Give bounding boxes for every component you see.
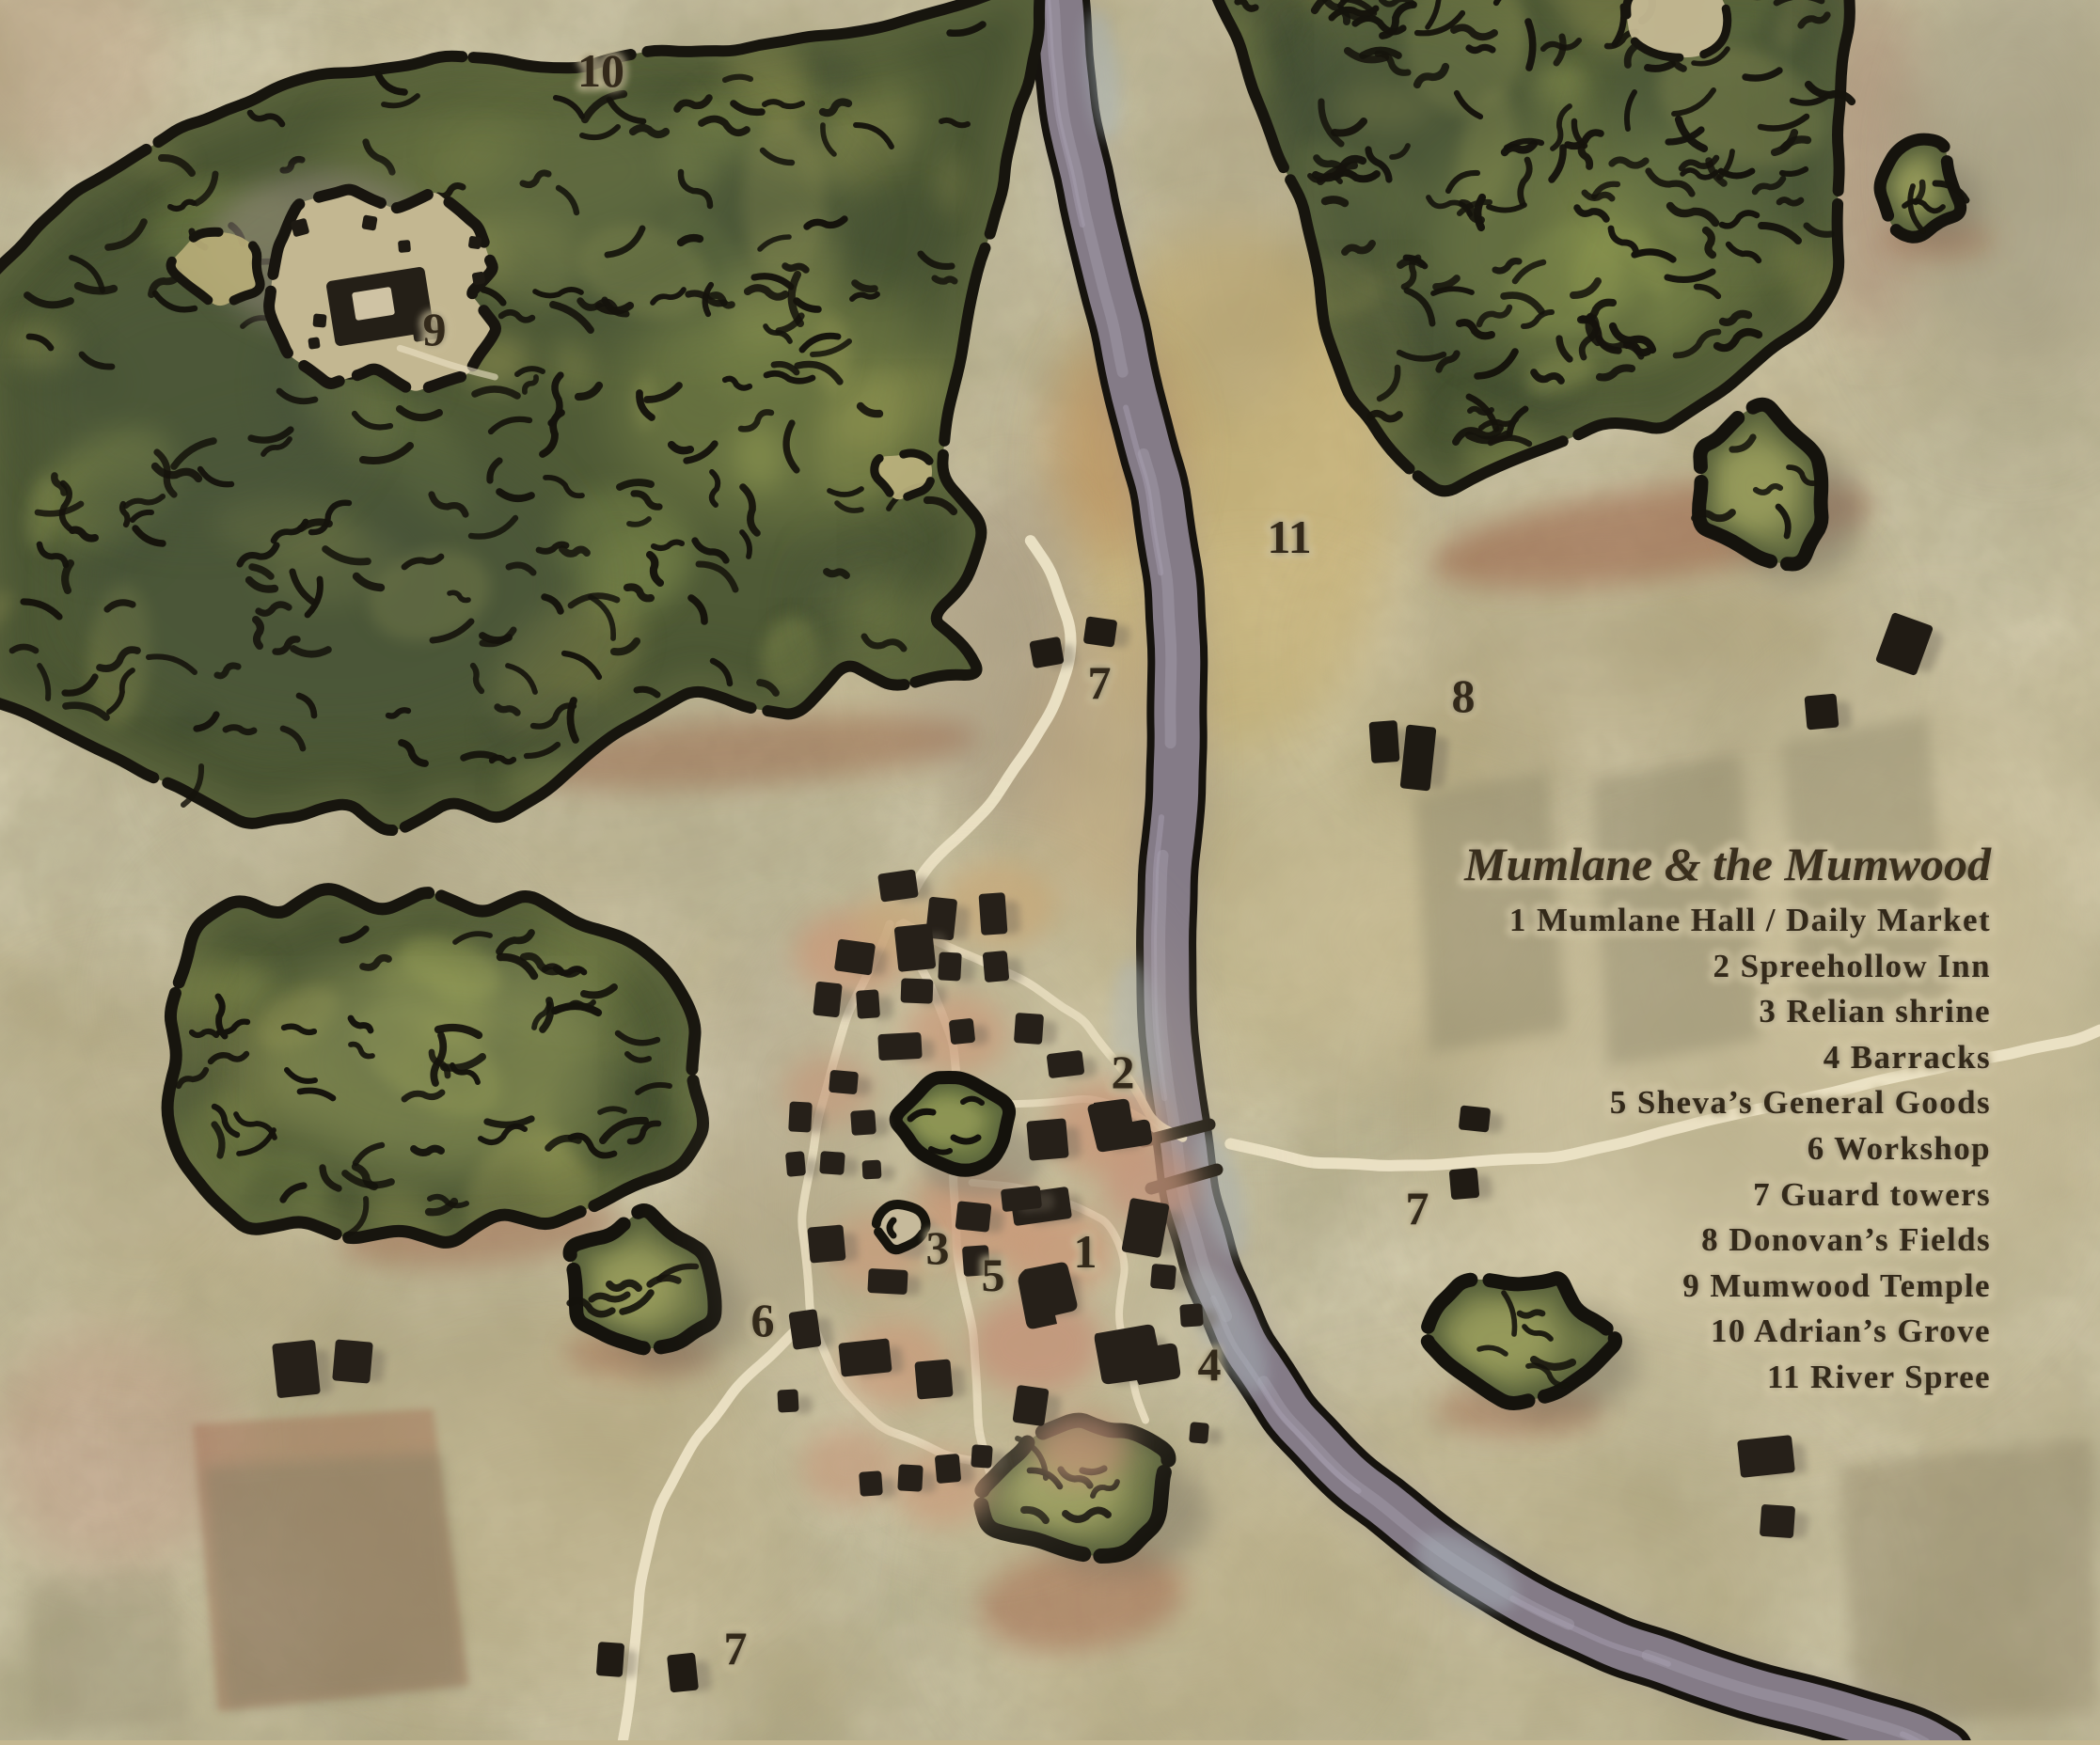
svg-text:4: 4 <box>1198 1338 1222 1391</box>
svg-text:11: 11 <box>1267 511 1311 563</box>
svg-text:7: 7 <box>1406 1182 1429 1234</box>
svg-text:1 Mumlane Hall / Daily Market: 1 Mumlane Hall / Daily Market <box>1509 902 1991 938</box>
svg-text:11 River Spree: 11 River Spree <box>1767 1359 1991 1395</box>
svg-text:2: 2 <box>1112 1045 1135 1098</box>
svg-text:5: 5 <box>982 1249 1005 1301</box>
svg-text:8 Donovan’s Fields: 8 Donovan’s Fields <box>1701 1221 1991 1258</box>
svg-text:7: 7 <box>724 1622 748 1674</box>
svg-text:9: 9 <box>423 303 447 355</box>
svg-text:Mumlane & the Mumwood: Mumlane & the Mumwood <box>1463 838 1992 890</box>
svg-text:6: 6 <box>751 1294 775 1346</box>
svg-text:10 Adrian’s Grove: 10 Adrian’s Grove <box>1711 1313 1991 1349</box>
svg-text:7: 7 <box>1088 656 1112 709</box>
svg-text:10: 10 <box>577 44 624 97</box>
svg-text:4 Barracks: 4 Barracks <box>1824 1039 1991 1076</box>
svg-text:8: 8 <box>1452 669 1476 722</box>
svg-text:7 Guard towers: 7 Guard towers <box>1753 1176 1991 1213</box>
svg-text:9 Mumwood Temple: 9 Mumwood Temple <box>1682 1267 1991 1304</box>
svg-text:5 Sheva’s General Goods: 5 Sheva’s General Goods <box>1610 1084 1991 1121</box>
svg-text:3: 3 <box>926 1221 950 1274</box>
svg-text:6 Workshop: 6 Workshop <box>1808 1130 1991 1167</box>
svg-text:3 Relian shrine: 3 Relian shrine <box>1759 993 1991 1030</box>
svg-text:1: 1 <box>1074 1225 1097 1278</box>
svg-text:2 Spreehollow Inn: 2 Spreehollow Inn <box>1713 948 1991 984</box>
